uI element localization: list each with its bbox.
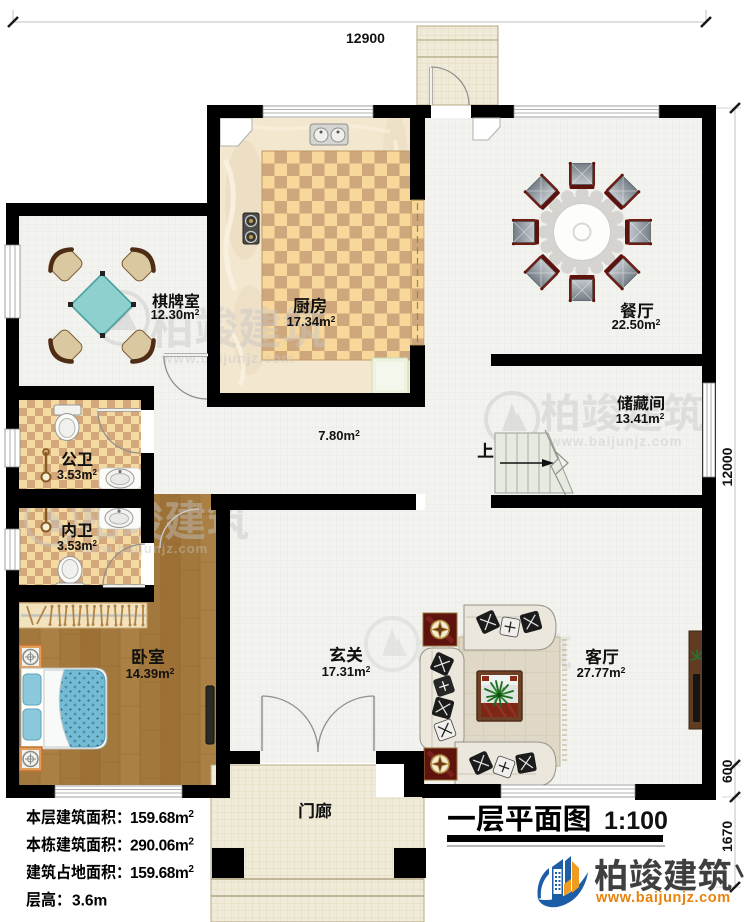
- svg-text:12.30m2: 12.30m2: [151, 307, 200, 322]
- svg-text:290.06m2: 290.06m2: [130, 837, 194, 855]
- svg-text:14.39m2: 14.39m2: [126, 666, 175, 681]
- svg-text:7.80m2: 7.80m2: [318, 428, 360, 443]
- svg-text:3.6m: 3.6m: [72, 893, 107, 910]
- svg-text:www.baijunjz.com: www.baijunjz.com: [595, 890, 731, 906]
- svg-text:1670: 1670: [719, 821, 735, 852]
- svg-text:27.77m2: 27.77m2: [577, 665, 626, 680]
- svg-text:1:100: 1:100: [604, 807, 668, 835]
- svg-text:3.53m2: 3.53m2: [57, 468, 97, 482]
- svg-text:3.53m2: 3.53m2: [57, 539, 97, 553]
- svg-text:600: 600: [719, 759, 735, 783]
- svg-text:22.50m2: 22.50m2: [612, 317, 661, 332]
- svg-text:17.31m2: 17.31m2: [322, 664, 371, 679]
- svg-text:17.34m2: 17.34m2: [287, 314, 336, 329]
- svg-text:13.41m2: 13.41m2: [616, 411, 665, 426]
- svg-text:12000: 12000: [719, 447, 735, 486]
- svg-text:www.baijunjz.com: www.baijunjz.com: [79, 541, 208, 556]
- svg-text:159.68m2: 159.68m2: [130, 864, 194, 882]
- svg-text:12900: 12900: [346, 30, 385, 46]
- svg-text:159.68m2: 159.68m2: [130, 809, 194, 827]
- svg-text:www.baijunjz.com: www.baijunjz.com: [549, 434, 683, 449]
